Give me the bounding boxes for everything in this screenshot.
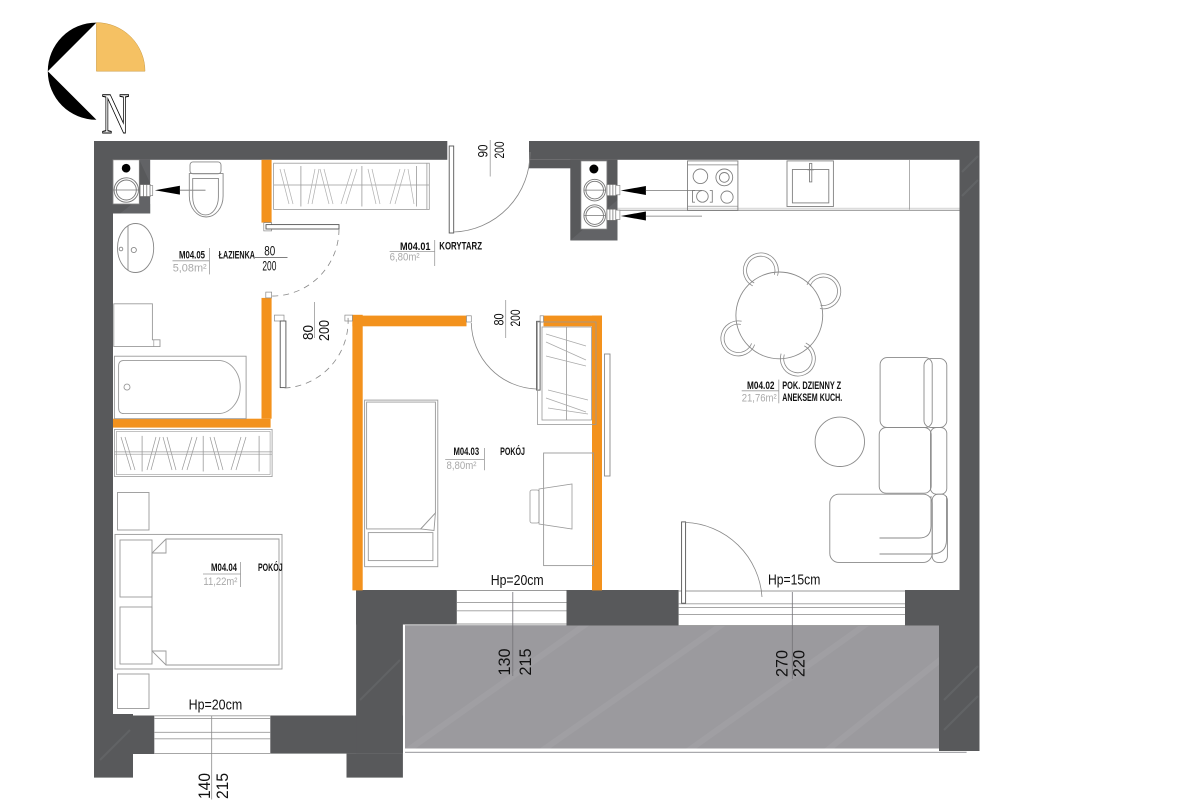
svg-text:200: 200: [262, 257, 276, 273]
svg-text:200: 200: [492, 142, 507, 159]
svg-text:Hp=15cm: Hp=15cm: [768, 573, 820, 589]
svg-text:POKÓJ: POKÓJ: [500, 445, 525, 458]
svg-text:21,76m²: 21,76m²: [742, 393, 777, 405]
svg-text:N: N: [102, 81, 130, 146]
svg-text:8,80m²: 8,80m²: [447, 460, 477, 472]
svg-text:215: 215: [517, 649, 535, 676]
svg-text:Hp=20cm: Hp=20cm: [189, 698, 243, 714]
svg-text:ŁAZIENKA: ŁAZIENKA: [219, 250, 255, 262]
svg-text:M04.02: M04.02: [747, 380, 775, 392]
svg-text:Hp=20cm: Hp=20cm: [491, 573, 544, 589]
svg-text:220: 220: [790, 650, 808, 677]
svg-text:80: 80: [492, 314, 507, 326]
svg-text:200: 200: [508, 310, 523, 327]
svg-text:200: 200: [317, 320, 333, 341]
svg-text:M04.03: M04.03: [454, 446, 480, 458]
svg-text:M04.04: M04.04: [211, 562, 238, 574]
svg-text:130: 130: [496, 649, 514, 676]
svg-text:6,80m²: 6,80m²: [390, 251, 420, 263]
svg-text:80: 80: [264, 242, 275, 258]
svg-text:5,08m²: 5,08m²: [173, 263, 207, 275]
svg-text:90: 90: [475, 145, 490, 158]
svg-text:KORYTARZ: KORYTARZ: [439, 240, 482, 252]
svg-text:11,22m²: 11,22m²: [203, 576, 237, 588]
svg-text:POK. DZIENNY Z: POK. DZIENNY Z: [782, 380, 841, 392]
svg-text:ANEKSEM KUCH.: ANEKSEM KUCH.: [782, 392, 842, 404]
svg-text:270: 270: [773, 650, 791, 677]
svg-text:215: 215: [214, 773, 232, 799]
svg-text:M04.05: M04.05: [179, 250, 205, 262]
svg-text:80: 80: [301, 325, 317, 340]
svg-text:POKÓJ: POKÓJ: [258, 561, 283, 574]
svg-text:140: 140: [196, 773, 214, 799]
